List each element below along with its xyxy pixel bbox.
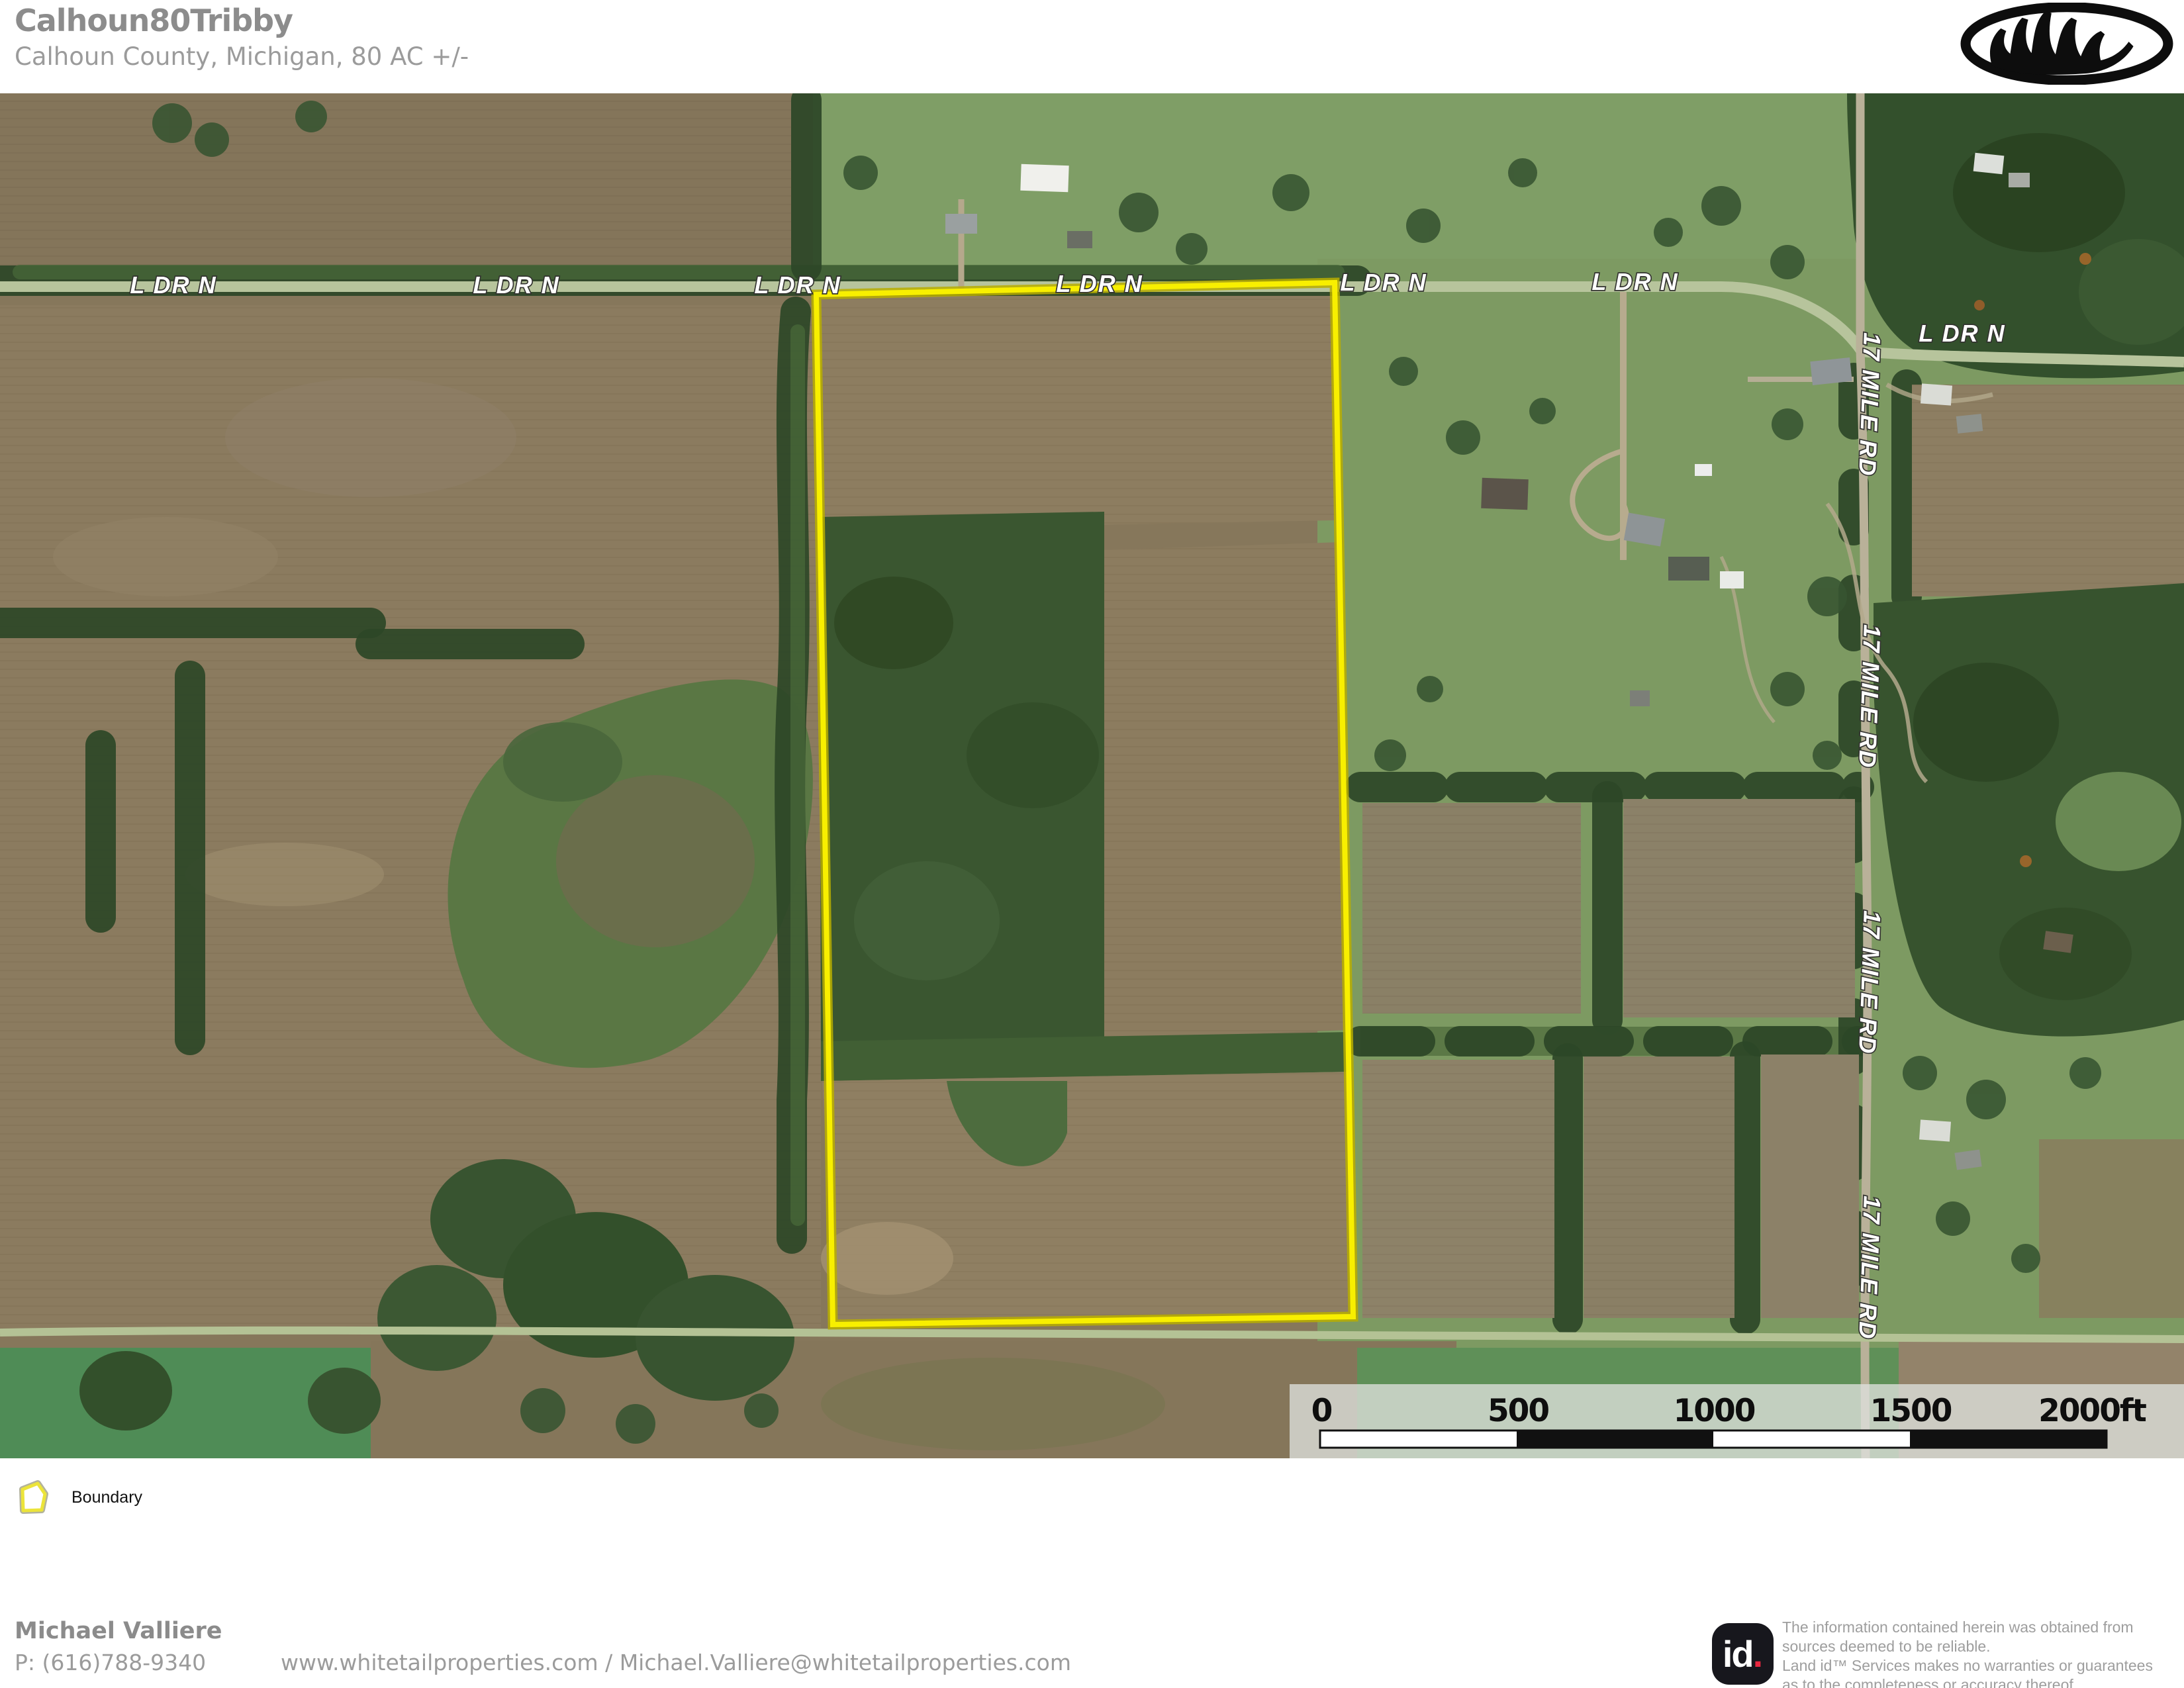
road-label-ldrn: L DR N (1919, 320, 2005, 347)
land-id-logo: id. (1712, 1623, 1774, 1685)
agent-contact-links: www.whitetailproperties.com / Michael.Va… (281, 1650, 1071, 1675)
page-title: Calhoun80Tribby (15, 3, 293, 38)
road-label-17mile: 17 MILE RD (1854, 624, 1886, 769)
scale-tick: 1500 (1870, 1393, 1952, 1429)
property-map-page: Calhoun80Tribby Calhoun County, Michigan… (0, 0, 2184, 1688)
scale-tick: 1000 (1674, 1393, 1755, 1429)
scale-bar: 0 500 1000 1500 2000ft (1290, 1384, 2184, 1458)
disclaimer-line: Land id™ Services makes no warranties or… (1782, 1656, 2153, 1675)
scale-tick: 0 (1311, 1393, 1332, 1429)
road-label-ldrn: L DR N (1340, 269, 1427, 296)
satellite-map: L DR N L DR N L DR N L DR N L DR N L DR … (0, 93, 2184, 1458)
road-label-ldrn: L DR N (1056, 270, 1143, 297)
disclaimer-line: sources deemed to be reliable. (1782, 1637, 2153, 1656)
scale-tick: 500 (1488, 1393, 1548, 1429)
agent-phone: P: (616)788-9340 (15, 1650, 206, 1675)
page-subtitle: Calhoun County, Michigan, 80 AC +/- (15, 42, 469, 71)
road-label-17mile: 17 MILE RD (1854, 1196, 1886, 1340)
road-label-ldrn: L DR N (754, 271, 841, 299)
road-label-17mile: 17 MILE RD (1854, 332, 1886, 477)
legend-boundary-label: Boundary (71, 1488, 142, 1507)
disclaimer-line: as to the completeness or accuracy there… (1782, 1675, 2153, 1688)
road-label-ldrn: L DR N (1591, 268, 1678, 295)
boundary-legend-icon (16, 1480, 49, 1515)
road-label-ldrn: L DR N (473, 271, 559, 299)
antler-icon (1990, 11, 2134, 75)
road-label-ldrn: L DR N (130, 271, 216, 299)
agent-name: Michael Valliere (15, 1618, 222, 1644)
map-area: L DR N L DR N L DR N L DR N L DR N L DR … (0, 93, 2184, 1458)
parcel-fields (816, 284, 1357, 1323)
road-label-17mile: 17 MILE RD (1854, 910, 1886, 1055)
land-id-logo-text: id (1723, 1636, 1753, 1673)
land-id-logo-dot: . (1753, 1636, 1764, 1673)
scale-tick: 2000ft (2038, 1393, 2146, 1429)
whitetail-properties-antler-logo (1957, 3, 2177, 85)
disclaimer: The information contained herein was obt… (1782, 1618, 2153, 1688)
disclaimer-line: The information contained herein was obt… (1782, 1618, 2153, 1637)
legend: Boundary (16, 1480, 142, 1515)
